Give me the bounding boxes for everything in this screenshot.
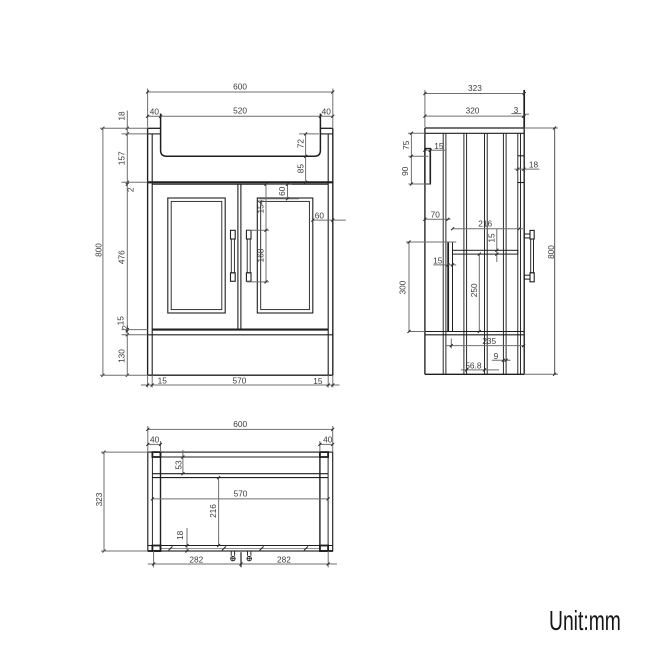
svg-text:323: 323	[94, 492, 104, 506]
svg-text:18: 18	[175, 530, 185, 540]
svg-text:216: 216	[208, 504, 218, 518]
svg-text:75: 75	[401, 140, 411, 150]
svg-text:60: 60	[315, 210, 325, 220]
svg-text:56.8: 56.8	[465, 361, 482, 371]
svg-text:2: 2	[120, 325, 130, 330]
svg-text:15: 15	[434, 141, 444, 151]
svg-text:40: 40	[150, 434, 160, 444]
svg-text:40: 40	[322, 107, 332, 117]
svg-text:18: 18	[529, 159, 539, 169]
svg-text:320: 320	[466, 105, 480, 115]
svg-text:154: 154	[256, 199, 266, 213]
svg-text:600: 600	[233, 82, 247, 92]
svg-text:235: 235	[482, 336, 496, 346]
svg-text:Unit:mm: Unit:mm	[549, 606, 621, 637]
svg-text:2: 2	[125, 187, 135, 192]
svg-text:216: 216	[478, 218, 492, 228]
svg-text:40: 40	[150, 107, 160, 117]
svg-text:570: 570	[232, 376, 246, 386]
svg-text:282: 282	[277, 555, 291, 565]
svg-text:520: 520	[233, 106, 247, 116]
svg-text:130: 130	[116, 349, 126, 363]
svg-text:15: 15	[313, 376, 323, 386]
svg-text:72: 72	[296, 139, 306, 149]
svg-text:15: 15	[115, 316, 125, 326]
svg-text:15: 15	[433, 255, 443, 265]
svg-text:476: 476	[116, 250, 126, 264]
svg-text:9: 9	[494, 351, 499, 361]
svg-text:90: 90	[400, 166, 410, 176]
svg-text:15: 15	[486, 233, 496, 243]
svg-text:800: 800	[93, 243, 103, 257]
svg-text:800: 800	[546, 245, 556, 259]
svg-text:85: 85	[296, 164, 306, 174]
svg-text:282: 282	[189, 554, 203, 564]
svg-text:53: 53	[173, 460, 183, 470]
svg-text:250: 250	[469, 283, 479, 297]
svg-text:570: 570	[234, 489, 248, 499]
svg-text:323: 323	[468, 83, 482, 93]
svg-text:18: 18	[117, 111, 127, 121]
svg-text:60: 60	[277, 186, 287, 196]
svg-text:300: 300	[398, 280, 408, 294]
svg-text:70: 70	[431, 209, 441, 219]
svg-text:157: 157	[116, 151, 126, 165]
svg-text:15: 15	[158, 376, 168, 386]
svg-text:40: 40	[323, 434, 333, 444]
svg-text:168: 168	[256, 248, 266, 262]
svg-text:600: 600	[233, 419, 247, 429]
